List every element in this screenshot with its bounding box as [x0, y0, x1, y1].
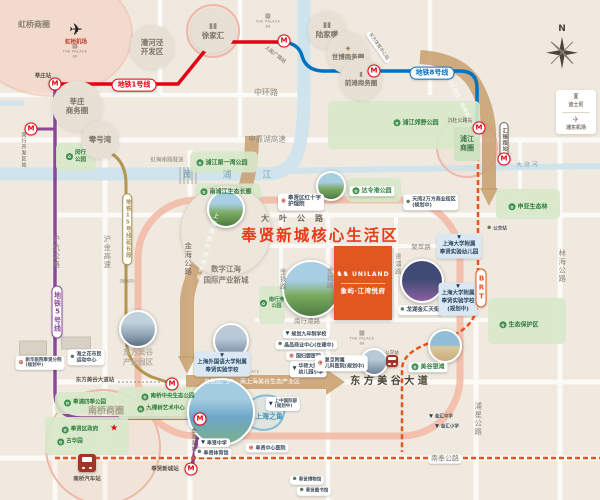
palace-logo-renmin: ▦THE PALACE88: [256, 13, 280, 28]
bus-wheel-icon: [393, 363, 395, 365]
metro-logo-icon: M: [371, 67, 378, 76]
gt-first-bay-park: ✿浦江第一湾公园: [196, 159, 247, 167]
hospital-icon: ⊕: [289, 353, 294, 359]
building-xinhua: [19, 341, 47, 356]
metro-logo-icon: M: [197, 415, 204, 424]
photo-dfmg-park: [119, 310, 157, 348]
bus-nanqiao-station: [78, 454, 96, 472]
leaf-icon: ✿: [62, 427, 69, 434]
metro-logo-icon: M: [52, 80, 59, 89]
zone-xujiahui: ▮▮徐家汇: [191, 9, 235, 53]
wt-longhu-tianjie: ●龙湖金汇天街: [398, 305, 443, 315]
gov-star-icon: ★: [110, 423, 118, 434]
station-dongfang-tiyu: M: [368, 65, 381, 78]
zone-linggang-wan-line: 零号湾: [89, 135, 112, 144]
zone-xinzhuang-biz-line: 莘庄: [70, 97, 85, 106]
wt-fengxian-hs: ▼奉贤中学: [198, 438, 230, 447]
bus-wheel-icon: [89, 467, 92, 470]
wt-haizhihua-sports: ●海之花市民运动中心: [68, 349, 105, 365]
photo-meigu-beach: [428, 329, 462, 363]
school-icon: ▼: [456, 285, 460, 290]
gt-dalinggang-park-text: 达令港公园: [361, 187, 391, 195]
gt-nanpujiang-corridor-text: 南浦江生态长廊: [209, 188, 251, 196]
gt-eco-reserve-text: 生态保护区: [508, 321, 538, 329]
leaf-icon: ✿: [352, 188, 359, 195]
school-icon: ▼: [269, 402, 273, 407]
road-dongfang-meigu-dadao: 东 方 美 谷 大 道: [350, 376, 427, 389]
gt-nanqiao-central-park-text: 南桥中央生态公园: [150, 394, 194, 401]
bus-window-icon: [388, 357, 395, 360]
line15-pill: 地铁15号线延长段: [122, 193, 132, 265]
wt-redcross-hospital: ⊕奉贤区红十字护理院: [278, 194, 324, 211]
compass-n-label: N: [558, 24, 566, 35]
metro-logo-icon: M: [281, 37, 288, 46]
station-dfmg-dadao-label: 东方美谷大道站: [76, 378, 115, 385]
wt-fengxian-museum: ●奉贤博物馆: [290, 476, 324, 485]
disney-label: 迪士尼: [568, 102, 583, 108]
bt-shangda-school-line: 奉贤实验学校: [441, 299, 474, 306]
wt-jinhui-middle-school-text: 金汇中学: [435, 414, 453, 420]
leaf-icon: ✿: [393, 120, 400, 127]
shuzi-jianghai-line2: 国际产业新城: [204, 275, 249, 284]
zone-caohejing: 漕河泾开发区: [130, 25, 174, 69]
palace-logo-sub: 88: [265, 24, 270, 29]
gt-dalinggang-park: ✿达令港公园: [349, 186, 394, 196]
wt-bus-stop-right: ●公交站: [484, 225, 509, 234]
nanqiao-biz-label: 南桥商圈: [88, 406, 124, 417]
road-jucui: 聚萃路: [411, 243, 431, 251]
road-xianpu: 贤浦路: [394, 253, 401, 276]
metro-logo-icon: M: [28, 125, 35, 134]
gt-nanqiao-central-park: ✿南桥中央生态公园: [141, 394, 194, 401]
road-huhang: 沪杭公路: [52, 235, 60, 269]
dfmg-park-line1: 东方美谷: [123, 347, 153, 356]
road-hujin: 沪金高速: [103, 235, 111, 269]
wt-fengxian-gym-text: 奉贤体育馆: [203, 450, 228, 456]
photo-longhu: [400, 259, 444, 303]
wt-haizhihua-sports-line: 海之花市民: [76, 351, 101, 357]
dfmg-park-line2: 产业园区: [123, 357, 153, 366]
bt-shangwai-school-line: 上海外国语大学附属: [197, 360, 247, 367]
school-icon: ▼: [457, 236, 461, 241]
leaf-icon: ✿: [64, 400, 71, 407]
disney-airport-box: ♜迪士尼✈浦东机场: [556, 90, 596, 134]
wt-bus-stop-right-text: 公交站: [493, 226, 507, 232]
road-shenjiahu: 申嘉湖高速: [248, 134, 286, 143]
school-icon: ▼: [201, 441, 205, 446]
art-icon: ◈: [346, 45, 351, 52]
building-haizhihua: [61, 337, 91, 350]
zone-xinzhuang-biz-line: 商务圈: [66, 106, 89, 115]
map-labels-layer: 漕河泾开发区▮▮徐家汇▮▮陆家嘴◈世博商务圈▮前滩商务圈莘庄商务圈零号湾浦江商圈…: [0, 0, 600, 500]
road-nanfeng: 南奉公路: [429, 455, 461, 464]
gt-nanxinggang-park: ✿南行港公园: [260, 297, 284, 310]
wt-fengxian-library-text: 奉贤图书馆: [306, 488, 329, 494]
station-renmin-label: 人民广场站: [263, 45, 287, 65]
pudong-airport-plane-icon: ✈: [573, 116, 580, 124]
gt-minhang-park-line: 闵行: [75, 150, 86, 157]
wt-tianyue-mall-line: 天阅2万方商业街区: [412, 196, 455, 202]
leaf-icon: ✿: [200, 189, 207, 196]
bus-nanqiao-label: 南桥汽车站: [73, 477, 101, 484]
bt-shangda-kindergarten-line: 奉贤实验幼儿园: [440, 250, 479, 257]
wt-tianyue-mall-line: (规划中): [412, 202, 455, 208]
metro-logo-icon: M: [501, 155, 508, 164]
wt-jingpin-mall-text: 晶品商业中心(在建中): [284, 342, 334, 348]
poi-dot-icon: ●: [278, 343, 282, 348]
zone-pujiang-biz-line: 商圈: [460, 144, 474, 153]
hospital-icon: ⊕: [281, 199, 286, 205]
wt-fengxian-museum-text: 奉贤博物馆: [299, 477, 322, 483]
road-jinqian: 金钱路: [279, 268, 286, 291]
poi-dot-icon: ●: [406, 200, 410, 205]
wt-xinhua-hospital-line: (规划中): [26, 363, 62, 369]
gt-minhang-park-line: 公园: [75, 157, 86, 164]
gt-meigu-beach-text: 美谷银滩: [420, 363, 444, 371]
gt-nanpujiang-corridor: ✿南浦江生态长廊: [200, 188, 251, 196]
gt-pujiang-country-park-text: 浦江郊野公园: [402, 119, 438, 127]
zone-pujiang-biz-line: 浦江: [460, 135, 474, 144]
wt-shangzhong-intl-line: (规划中): [275, 404, 298, 410]
metro-logo-icon: M: [169, 380, 176, 389]
compass: N: [545, 24, 579, 75]
line8-pill: 地铁8号线: [410, 67, 455, 80]
gt-shenya-forest: ✿申亚生态林: [508, 203, 547, 211]
station-xinzhuang-label: 莘庄站: [35, 74, 52, 81]
main-title: 奉贤新城核心生活区: [241, 226, 399, 245]
school-icon: ▼: [286, 332, 290, 337]
hospital-icon: ⊕: [18, 360, 23, 366]
station-jinhaihu-label: 金海湖站: [191, 428, 196, 452]
wt-fengxian-gym: ●奉贤体育馆: [195, 448, 232, 457]
leaf-icon: ✿: [57, 439, 64, 446]
hospital-icon: ⊕: [318, 360, 323, 366]
school-icon: ▼: [220, 354, 224, 359]
wt-jinhui-primary-school: ▼金汇小学: [432, 423, 462, 432]
brt-pill: BRT: [476, 269, 487, 308]
gt-eco-reserve: ✿生态保护区: [499, 321, 538, 329]
zone-caohejing-line: 漕河泾: [141, 38, 164, 47]
poi-dot-icon: ●: [198, 451, 202, 456]
hongqiao-airport-label: 虹桥机场: [65, 40, 87, 47]
leaf-icon: ✿: [141, 394, 148, 401]
station-jinhaihu: M: [194, 413, 207, 426]
bus-wheel-icon: [82, 467, 85, 470]
leaf-icon: ✿: [66, 154, 73, 161]
wt-planned-school: ▼规划九年制学校: [283, 329, 330, 338]
line5-pill: 地铁5号线: [52, 286, 63, 339]
tunnel-hongmei: 虹梅南路隧道: [150, 158, 183, 165]
bt-shangda-school-line: 上海大学附属: [441, 291, 474, 298]
bt-shangda-school: ▼上海大学附属奉贤实验学校(规划中): [438, 283, 477, 316]
bus-window-icon: [82, 457, 93, 462]
wt-fengxian-hospital-text: 奉贤中心医院: [256, 445, 286, 451]
hongqiao-plane-icon: ✈: [69, 20, 82, 40]
river-huangpu-label: 黄 浦 江: [183, 170, 286, 181]
disney-castle-icon: ♜: [572, 93, 579, 101]
gt-pujiang-country-park: ✿浦江郊野公园: [393, 119, 438, 127]
road-daye: 大叶公路: [261, 214, 333, 224]
gt-fengxian-gov: ✿奉贤区政府: [62, 427, 99, 434]
metro-logo-icon: M: [476, 124, 483, 133]
gt-guhuayuan-text: 古华园: [66, 439, 83, 446]
wt-shangzhong-intl: ▼上中国际部(规划中): [266, 397, 300, 411]
gt-fengxian-gov-text: 奉贤区政府: [71, 427, 99, 434]
brand-block-uniland: ♞♞UNILAND象屿·江湾悦府: [334, 246, 392, 320]
road-jinhai: 金海公路: [184, 242, 192, 276]
wt-fudan-children-hospital: ⊕复旦附属儿科医院(规划中): [315, 355, 368, 371]
zone-qiantan-line: 前滩商务圈: [345, 79, 378, 87]
leaf-icon: ✿: [137, 406, 144, 413]
fish-label: 上海之鱼: [255, 413, 283, 422]
metro-logo-icon: M: [188, 465, 195, 474]
bt-shangda-kindergarten: ▼上海大学附属奉贤实验幼儿园: [437, 234, 482, 259]
poi-dot-icon: ●: [71, 355, 75, 360]
road-nanxinggang: 南行港路: [294, 317, 320, 325]
leaf-icon: ✿: [411, 364, 418, 371]
station-chendu-gonglu: M: [473, 122, 486, 135]
gt-meigu-beach: ✿美谷银滩: [408, 362, 447, 372]
zone-caohejing-line: 开发区: [141, 47, 164, 56]
wt-jinhui-middle-school: ▼金汇中学: [426, 413, 456, 422]
uniland-horses-icon: ♞♞: [336, 271, 349, 278]
palace-logo-sub: 88: [359, 341, 364, 346]
school-icon: ▼: [429, 415, 433, 420]
school-icon: ▼: [435, 425, 439, 430]
uniland-logo-text: UNILAND: [352, 271, 390, 279]
bt-shangda-school-line: (规划中): [447, 306, 469, 313]
palace-logo-sub: 88: [72, 54, 77, 59]
wt-xinhua-hospital: ⊕新华医院奉贤分院(规划中): [15, 356, 64, 370]
station-renmin-guangchang: M: [278, 35, 291, 48]
road-linhai: 林海公路: [558, 249, 566, 283]
wt-planned-school-text: 规划九年制学校: [291, 331, 326, 337]
gt-jiukeshu-art-text: 九棵树艺术中心: [146, 406, 185, 413]
hospital-icon: ⊕: [248, 445, 253, 451]
wt-fengxian-hs-text: 奉贤中学: [207, 440, 227, 446]
station-dongfang-tiyu-label: 东方体育中心站: [366, 31, 391, 63]
road-zhonghuan: 中环路: [254, 88, 278, 98]
compass-star-icon: [545, 36, 579, 74]
poi-dot-icon: ●: [401, 308, 405, 313]
tower-icon: ▮: [359, 71, 363, 78]
shuzi-jianghai-line1: 数字江海: [211, 264, 241, 273]
station-minhang-label: 闵行开发区站: [21, 132, 26, 168]
wt-jinhui-primary-school-text: 金汇小学: [441, 424, 459, 430]
road-puxing: 浦星公路: [474, 402, 482, 436]
line15-planned-label: (规划中): [119, 279, 134, 284]
bus-stop-jinhui-label: 公交站: [385, 351, 399, 357]
project-name: 象屿·江湾悦府: [341, 283, 386, 295]
gt-guhuayuan: ✿古华园: [57, 439, 83, 446]
towers-icon: ▮▮: [323, 21, 331, 29]
wt-fudan-children-hospital-line: 儿科医院(规划中): [325, 363, 365, 369]
leaf-icon: ✿: [196, 160, 203, 167]
station-fengxian-xincheng-label: 奉贤新城站: [151, 467, 179, 474]
gt-jiukeshu-art: ✿九棵树艺术中心: [137, 406, 185, 413]
bt-shangda-kindergarten-line: 上海大学附属: [442, 242, 475, 249]
poi-dot-icon: ●: [300, 489, 304, 494]
river-dazhi-label: 大 治 河: [516, 161, 538, 169]
leaf-icon: ✿: [499, 322, 506, 329]
station-chendu-label: 沉杜公路站: [447, 118, 472, 124]
gt-shenya-forest-text: 申亚生态林: [517, 203, 547, 211]
wt-fengxian-library: ●奉贤图书馆: [297, 487, 331, 496]
bus-wheel-icon: [388, 363, 390, 365]
wt-jingpin-mall: ●晶品商业中心(在建中): [275, 340, 337, 349]
leaf-icon: ✿: [508, 204, 515, 211]
poi-dot-icon: ●: [293, 478, 297, 483]
wt-haizhihua-sports-line: 运动中心: [76, 357, 101, 363]
hongqiao-biz-label: 虹桥商圈: [18, 20, 50, 30]
poi-dot-icon: ●: [487, 227, 491, 232]
zone-xujiahui-line: 徐家汇: [202, 31, 225, 40]
bt-shangwai-school: ▼上海外国语大学附属奉贤实验学校: [194, 352, 250, 377]
gt-minhang-park: ✿闵行公园: [66, 150, 86, 164]
leaf-icon: ✿: [260, 300, 267, 307]
gt-fengpu-siji-park: ✿奉浦四季公园: [64, 400, 106, 407]
road-jinbi: 金碧路: [326, 267, 333, 290]
gt-nanxinggang-park-line: 公园: [269, 303, 284, 309]
pudong-airport-label: 浦东机场: [566, 125, 586, 131]
line1-pill: 地铁1号线: [112, 79, 157, 92]
palace-logo-jinhui: ▦THE PALACE88: [350, 330, 374, 345]
wt-redcross-hospital-line: 护理院: [288, 202, 321, 209]
station-dfmg-dadao: M: [166, 378, 179, 391]
wt-fengxian-hospital: ⊕奉贤中心医院: [245, 443, 288, 452]
station-huizhenlu: M: [498, 153, 511, 166]
bt-shangwai-school-line: 奉贤实验学校: [205, 368, 238, 375]
zone-linggang-wan: 零号湾: [81, 121, 119, 159]
wt-tianyue-mall: ●天阅2万方商业街区(规划中): [403, 194, 458, 210]
school-icon: ▼: [293, 367, 297, 372]
gt-first-bay-park-text: 浦江第一湾公园: [205, 159, 247, 167]
station-fengxian-xincheng: M: [185, 463, 198, 476]
towers-icon: ▮▮: [209, 22, 217, 30]
band-bottom-label: 自贸区门户、南上海美谷生态产业区: [204, 378, 300, 386]
gt-fengpu-siji-park-text: 奉浦四季公园: [73, 400, 106, 407]
wt-longhu-tianjie-text: 龙湖金汇天街: [406, 307, 439, 314]
map-canvas: 漕河泾开发区▮▮徐家汇▮▮陆家嘴◈世博商务圈▮前滩商务圈莘庄商务圈零号湾浦江商圈…: [0, 0, 600, 500]
